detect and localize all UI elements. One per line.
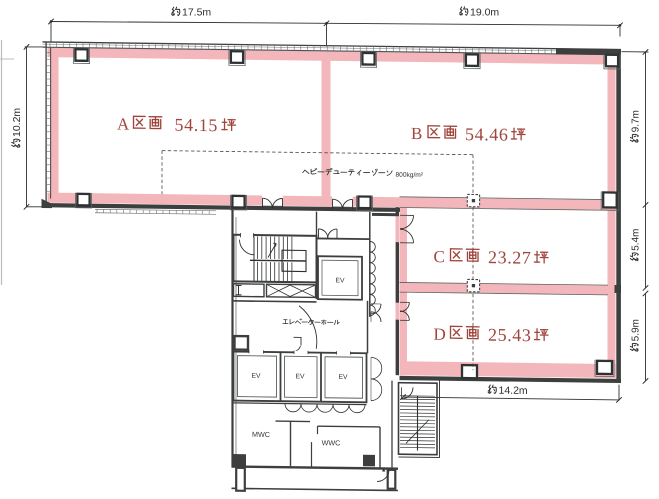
svg-text:54.15: 54.15 — [175, 115, 219, 136]
svg-text:EV: EV — [335, 277, 345, 284]
svg-text:WWC: WWC — [322, 438, 341, 447]
svg-text:54.46: 54.46 — [465, 124, 509, 145]
svg-text:EV: EV — [338, 374, 348, 381]
svg-text:5.4m: 5.4m — [630, 229, 641, 251]
svg-text:C: C — [434, 247, 445, 266]
svg-text:D: D — [434, 325, 446, 344]
svg-text:B: B — [411, 124, 422, 143]
svg-text:19.0m: 19.0m — [470, 6, 499, 18]
svg-text:25.43: 25.43 — [488, 325, 532, 346]
svg-text:5.9m: 5.9m — [630, 319, 641, 341]
svg-text:14.2m: 14.2m — [499, 385, 528, 397]
svg-text:EV: EV — [251, 373, 261, 380]
svg-text:17.5m: 17.5m — [182, 7, 211, 19]
svg-text:EV: EV — [295, 373, 305, 380]
svg-text:A: A — [117, 115, 130, 134]
svg-text:10.2m: 10.2m — [11, 108, 23, 137]
svg-text:23.27: 23.27 — [488, 247, 532, 268]
svg-text:800kg/m²: 800kg/m² — [396, 172, 424, 179]
svg-text:9.7m: 9.7m — [630, 110, 641, 132]
svg-text:MWC: MWC — [252, 430, 270, 439]
